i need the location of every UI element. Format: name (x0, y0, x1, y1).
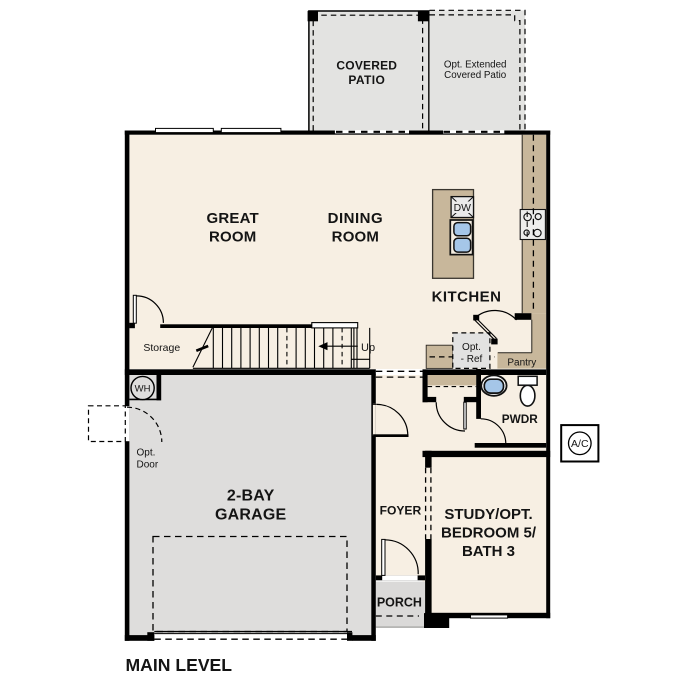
svg-text:Covered Patio: Covered Patio (444, 70, 507, 81)
svg-text:KITCHEN: KITCHEN (432, 289, 502, 306)
svg-text:PWDR: PWDR (502, 412, 539, 426)
svg-text:Up: Up (361, 342, 375, 354)
svg-text:Opt.: Opt. (462, 342, 481, 353)
svg-text:2-BAY: 2-BAY (227, 487, 275, 504)
svg-text:Opt.: Opt. (137, 447, 156, 458)
svg-text:COVERED: COVERED (336, 58, 397, 72)
svg-text:Opt. Extended: Opt. Extended (444, 59, 507, 70)
svg-text:ROOM: ROOM (209, 229, 256, 246)
svg-text:WH: WH (135, 384, 151, 395)
svg-text:- Ref: - Ref (461, 354, 483, 365)
svg-text:Door: Door (137, 459, 159, 470)
svg-text:A/C: A/C (571, 438, 589, 450)
svg-text:BATH 3: BATH 3 (462, 543, 515, 560)
svg-text:DINING: DINING (328, 210, 384, 227)
svg-text:Pantry: Pantry (507, 358, 536, 369)
svg-text:PATIO: PATIO (348, 73, 385, 87)
svg-text:MAIN LEVEL: MAIN LEVEL (126, 655, 233, 675)
svg-text:GREAT: GREAT (207, 210, 259, 227)
svg-text:STUDY/OPT.: STUDY/OPT. (444, 506, 532, 523)
svg-text:ROOM: ROOM (332, 229, 379, 246)
svg-text:FOYER: FOYER (380, 504, 422, 518)
svg-text:BEDROOM 5/: BEDROOM 5/ (441, 525, 537, 542)
svg-text:PORCH: PORCH (377, 595, 422, 609)
svg-text:Storage: Storage (143, 342, 180, 354)
svg-text:GARAGE: GARAGE (215, 507, 287, 524)
svg-text:DW: DW (454, 203, 472, 214)
